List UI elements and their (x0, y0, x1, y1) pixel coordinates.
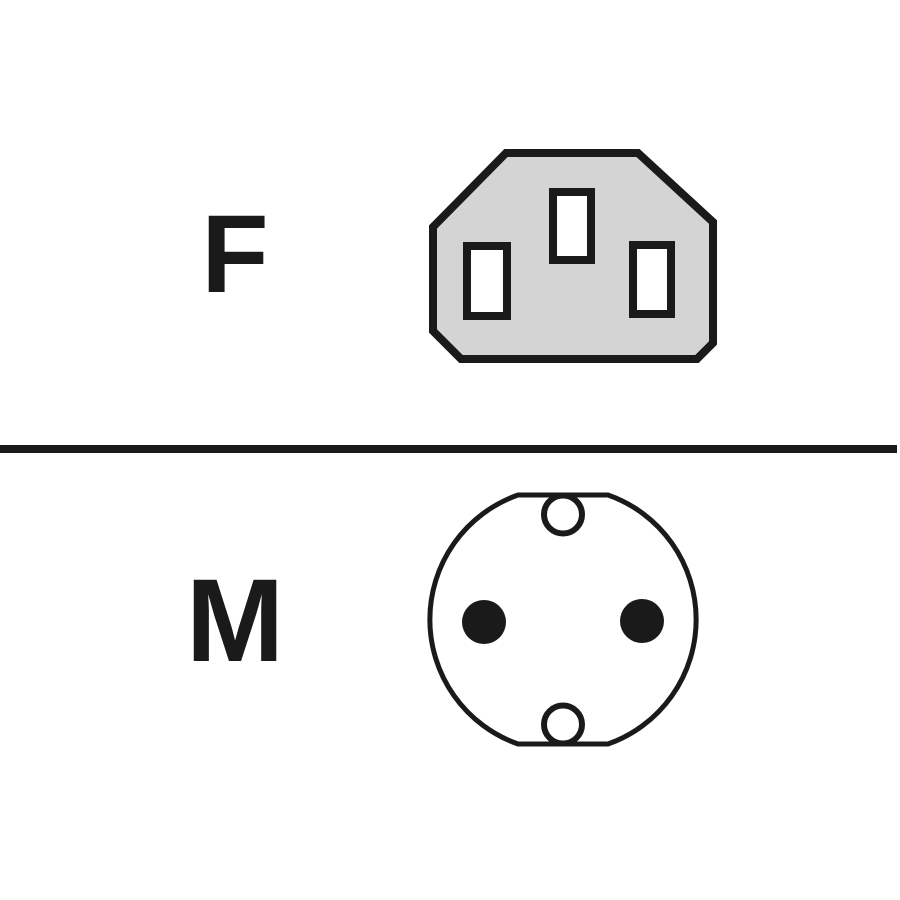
female-center-pin-slot (553, 192, 591, 260)
female-right-pin-slot (633, 245, 671, 314)
female-label: F (135, 190, 335, 320)
male-bottom-clip-hole (544, 706, 582, 744)
female-connector-icon (433, 153, 713, 359)
diagram-canvas: F M (0, 0, 900, 900)
connector-diagram (0, 0, 900, 900)
male-connector-icon (430, 495, 696, 744)
male-label: M (135, 556, 335, 686)
male-left-pin (462, 600, 506, 644)
female-left-pin-slot (467, 246, 507, 316)
divider-line (0, 445, 897, 453)
male-top-clip-hole (544, 496, 582, 534)
male-right-pin (620, 599, 664, 643)
